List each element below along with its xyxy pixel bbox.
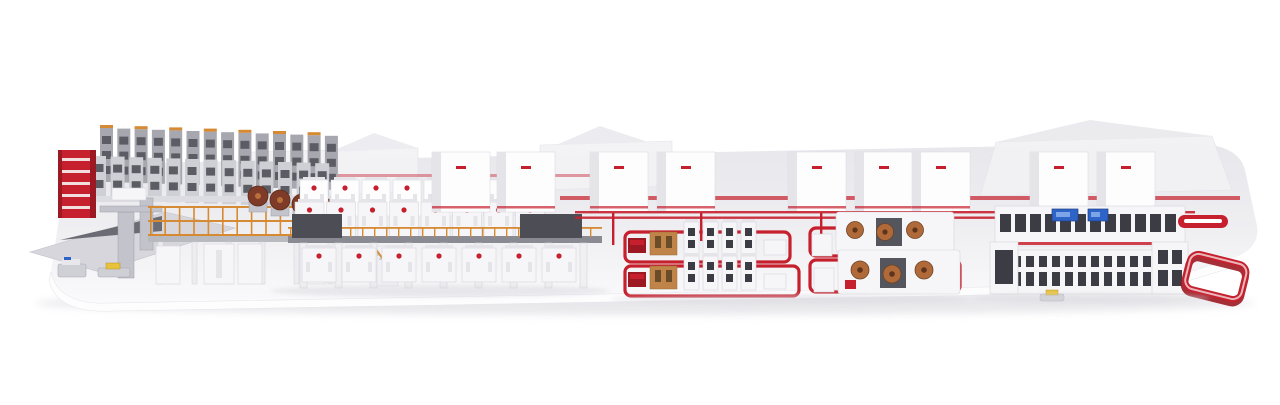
rack-cap: [238, 130, 251, 133]
module-door: [448, 262, 452, 272]
enclosure-side-shade: [657, 152, 666, 212]
module-valve: [356, 253, 361, 258]
print-roll-core: [882, 229, 887, 234]
module-door: [386, 262, 390, 272]
rack-slot: [206, 168, 215, 176]
prefeeder-slot: [655, 236, 661, 248]
railing-post: [236, 206, 238, 236]
shadow-corrugator: [270, 285, 610, 297]
module-roof: [345, 245, 373, 248]
enclosure-logo: [936, 166, 946, 169]
rack-slot: [206, 184, 215, 192]
rack-cap: [273, 131, 286, 134]
rack-slot: [188, 167, 197, 175]
rack-slat: [62, 158, 90, 161]
window-slot: [1117, 256, 1125, 267]
tower-cap: [685, 219, 698, 222]
prefeeder: [650, 266, 677, 289]
rack-slot: [102, 136, 111, 144]
window-slot: [1052, 272, 1060, 286]
background-enclosures: [432, 152, 1155, 212]
module-valve: [316, 253, 321, 258]
cabinet-1: [156, 246, 180, 284]
tower-unit: [703, 256, 718, 290]
tower-cap: [723, 253, 736, 256]
finishing-end-tower-right-win4: [1172, 270, 1182, 286]
enclosure-logo: [812, 166, 822, 169]
capsule-conveyor-top: [1184, 219, 1222, 223]
prefeeder-slot: [655, 270, 661, 282]
tower-unit: [741, 256, 756, 290]
rack-slot: [169, 182, 178, 190]
tower-window: [745, 228, 752, 236]
module-valve: [370, 207, 375, 212]
rdc-cabinet-1: [812, 234, 832, 256]
railing-post: [494, 228, 495, 237]
window-slot: [1117, 272, 1125, 286]
module-door: [466, 262, 470, 272]
tower-window: [745, 240, 752, 248]
tower-unit: [684, 222, 699, 256]
finishing-end-tower-right-win: [1158, 250, 1168, 264]
module-door: [442, 216, 446, 226]
enclosure-side-shade: [1030, 152, 1039, 212]
rdc-cabinet-2: [814, 268, 834, 292]
module-roof: [385, 245, 413, 248]
tower-unit: [684, 256, 699, 290]
module-door: [457, 216, 461, 226]
module-valve: [342, 185, 347, 190]
tower-cap: [704, 219, 717, 222]
outfeed-unit: [764, 240, 786, 255]
roll-core: [277, 197, 283, 203]
rack-slot: [150, 182, 159, 190]
plant-scene-svg: [0, 0, 1280, 405]
enclosure-base-stripe: [912, 206, 970, 209]
tower-window: [688, 240, 695, 248]
module-roof: [505, 245, 533, 248]
module-valve: [516, 253, 521, 258]
railing-post: [518, 228, 519, 237]
prefeeder-slot: [666, 236, 672, 248]
support-leg: [580, 243, 587, 288]
module-door: [328, 262, 332, 272]
tower-window: [707, 228, 714, 236]
window-slot: [1065, 272, 1073, 286]
module-roof: [330, 199, 353, 202]
red-roll-rack: [58, 150, 96, 218]
enclosure-side-shade: [1097, 152, 1106, 212]
enclosure-base-stripe: [855, 206, 913, 209]
module-door: [408, 262, 412, 272]
railing-post: [458, 228, 459, 237]
module-door: [488, 262, 492, 272]
enclosure-logo: [1121, 166, 1131, 169]
print-roll-core: [889, 271, 895, 277]
module-door: [346, 262, 350, 272]
railing-post: [446, 228, 447, 237]
module-door: [506, 262, 510, 272]
rack-slat: [62, 182, 90, 185]
window-slot: [1078, 256, 1086, 267]
window-slot: [1026, 256, 1034, 267]
module-roof: [425, 245, 453, 248]
module-door: [394, 216, 398, 226]
roll-core: [255, 193, 261, 199]
tower-unit: [722, 256, 737, 290]
enclosure-logo: [879, 166, 889, 169]
tower-unit: [703, 222, 718, 256]
prefeeder: [650, 232, 677, 255]
railing-post: [386, 228, 387, 237]
railing-post: [590, 228, 591, 237]
tower-window: [688, 274, 695, 282]
shadow-converting: [610, 294, 970, 304]
cabinet-3: [238, 244, 262, 284]
window-slot: [1130, 272, 1138, 286]
railing-post: [470, 228, 471, 237]
enclosure-base-stripe: [657, 206, 715, 209]
glass-panel: [1135, 214, 1146, 232]
tower-window: [707, 274, 714, 282]
enclosure-logo: [521, 166, 531, 169]
enclosure-logo: [614, 166, 624, 169]
window-slot: [1039, 272, 1047, 286]
tower-cap: [723, 219, 736, 222]
railing-post: [350, 228, 351, 237]
module-door: [474, 216, 478, 226]
enclosure-side-shade: [855, 152, 864, 212]
shadow-finishing: [970, 293, 1210, 303]
window-slot: [1091, 272, 1099, 286]
rack-slot: [171, 138, 180, 146]
rack-column: [166, 158, 180, 202]
rack-slot: [275, 142, 284, 150]
plant-render: [0, 0, 1280, 405]
glass-panel: [1030, 214, 1041, 232]
tower-cap: [742, 253, 755, 256]
screen-2-content: [1091, 212, 1100, 217]
module-door: [568, 262, 572, 272]
module-roof: [303, 177, 325, 180]
enclosure-base-stripe: [432, 206, 490, 209]
rack-column: [148, 158, 162, 202]
print-roll-core: [921, 267, 927, 273]
module-roof: [305, 245, 333, 248]
end-panel-right: [520, 214, 582, 238]
railing-post: [374, 228, 375, 237]
railing-post: [362, 228, 363, 237]
module-roof: [334, 177, 356, 180]
prefeeder-slot: [666, 270, 672, 282]
enclosure-side-shade: [432, 152, 441, 212]
module-roof: [365, 177, 387, 180]
rdc-red-unit: [845, 280, 856, 289]
module-valve: [338, 207, 343, 212]
glass-panel: [1015, 214, 1026, 232]
enclosure-logo: [456, 166, 466, 169]
tower-unit: [722, 222, 737, 256]
module-roof: [396, 177, 418, 180]
module-door: [425, 216, 429, 226]
glass-panel: [1120, 214, 1131, 232]
module-door: [306, 262, 310, 272]
window-slot: [1078, 272, 1086, 286]
railing-post: [506, 228, 507, 237]
tower-window: [726, 274, 733, 282]
window-slot: [1104, 272, 1112, 286]
rack-cap: [135, 126, 148, 129]
mezzanine-column: [192, 242, 197, 284]
tower-window: [745, 274, 752, 282]
rack-slot: [132, 165, 141, 173]
module-roof: [361, 199, 384, 202]
rack-slot: [154, 138, 163, 146]
module-door: [379, 216, 383, 226]
railing-post: [290, 228, 291, 237]
print-roll-core: [857, 267, 863, 273]
print-roll-core: [852, 227, 857, 232]
window-slot: [1039, 256, 1047, 267]
outfeed-unit: [764, 274, 786, 289]
rack-slot: [281, 170, 290, 178]
rack-slat: [62, 170, 90, 173]
window-slot: [1091, 256, 1099, 267]
rack-slot: [327, 144, 336, 152]
module-roof: [393, 199, 416, 202]
tower-unit: [741, 222, 756, 256]
glass-panel: [1000, 214, 1011, 232]
module-valve: [401, 207, 406, 212]
rack-cap: [308, 132, 321, 135]
rack-slot: [169, 166, 178, 174]
mezzanine-column: [294, 242, 299, 284]
module-roof: [298, 199, 321, 202]
rack-slot: [240, 141, 249, 149]
glass-panel: [1150, 214, 1161, 232]
module-door: [488, 216, 492, 226]
rack-cap: [204, 129, 217, 132]
rack-slot: [225, 168, 234, 176]
module-valve: [436, 253, 441, 258]
module-door: [528, 262, 532, 272]
railing-post: [193, 206, 195, 236]
rack-slot: [113, 181, 122, 189]
rack-slot: [188, 183, 197, 191]
rack-slot: [243, 169, 252, 177]
rack-cap: [169, 127, 182, 130]
stacker-top: [630, 240, 644, 245]
module-valve: [396, 253, 401, 258]
tower-window: [707, 262, 714, 270]
module-valve: [404, 185, 409, 190]
railing-post: [222, 206, 224, 236]
screen-1-content: [1056, 212, 1070, 217]
window-slot: [1065, 256, 1073, 267]
rack-slat: [62, 194, 90, 197]
rack-slot: [292, 143, 301, 151]
tower-window: [726, 228, 733, 236]
window-slot: [1143, 272, 1151, 286]
railing-post: [410, 228, 411, 237]
enclosure-side-shade: [590, 152, 599, 212]
railing-post: [434, 228, 435, 237]
tower-cap: [742, 219, 755, 222]
tower-window: [688, 262, 695, 270]
enclosure-logo: [1054, 166, 1064, 169]
conveyor-spur-3: [612, 213, 614, 245]
finishing-end-tower-right-win2: [1172, 250, 1182, 264]
glass-panel: [1165, 214, 1176, 232]
enclosure-base-stripe: [497, 206, 555, 209]
rack-slot: [310, 143, 319, 151]
window-slot: [1052, 256, 1060, 267]
rack-cap: [100, 125, 113, 128]
module-door: [411, 216, 415, 226]
rack-slot: [262, 169, 271, 177]
rack-slot: [189, 139, 198, 147]
splicer-head: [112, 188, 146, 200]
finishing-end-tower-left-win: [995, 250, 1013, 284]
module-door: [426, 262, 430, 272]
rack-slot: [206, 140, 215, 148]
building-mid-roof: [556, 126, 648, 145]
rack-slot: [113, 165, 122, 173]
rack-slot: [119, 137, 128, 145]
module-door: [362, 216, 366, 226]
rack-slot: [225, 184, 234, 192]
rack-slot: [150, 166, 159, 174]
tower-window: [726, 240, 733, 248]
module-valve: [556, 253, 561, 258]
module-door: [505, 216, 509, 226]
rack-slot: [223, 140, 232, 148]
railing-post: [179, 206, 181, 236]
stacker-top: [630, 274, 644, 279]
conveyor-spur-1: [700, 213, 702, 241]
enclosure-side-shade: [912, 152, 921, 212]
window-slot: [1026, 272, 1034, 286]
railing-post: [150, 206, 152, 236]
module-valve: [476, 253, 481, 258]
module-door: [348, 216, 352, 226]
window-slot: [1143, 256, 1151, 267]
module-door: [546, 262, 550, 272]
module-roof: [545, 245, 573, 248]
window-slot: [1104, 256, 1112, 267]
railing-post: [208, 206, 210, 236]
tower-cap: [685, 253, 698, 256]
tower-window: [726, 262, 733, 270]
module-door: [368, 262, 372, 272]
railing-post: [422, 228, 423, 237]
cabinet-door-line: [216, 250, 222, 278]
enclosure-base-stripe: [788, 206, 846, 209]
enclosure-logo: [681, 166, 691, 169]
finishing-end-tower-right-win3: [1158, 270, 1168, 286]
module-valve: [311, 185, 316, 190]
tower-window: [688, 228, 695, 236]
module-valve: [373, 185, 378, 190]
railing-post: [398, 228, 399, 237]
rack-slot: [258, 141, 267, 149]
end-panel-left: [292, 214, 342, 238]
conveyor-spur-2: [820, 213, 822, 237]
module-valve: [307, 207, 312, 212]
enclosure-side-shade: [497, 152, 506, 212]
rack-slot: [137, 137, 146, 145]
railing-post: [482, 228, 483, 237]
window-slot: [1130, 256, 1138, 267]
tower-window: [707, 240, 714, 248]
enclosure-base-stripe: [590, 206, 648, 209]
module-roof: [465, 245, 493, 248]
railing-post: [164, 206, 166, 236]
tower-cap: [704, 253, 717, 256]
print-roll-core: [912, 227, 917, 232]
rack-slat: [62, 206, 90, 209]
enclosure-side-shade: [788, 152, 797, 212]
tower-window: [745, 262, 752, 270]
